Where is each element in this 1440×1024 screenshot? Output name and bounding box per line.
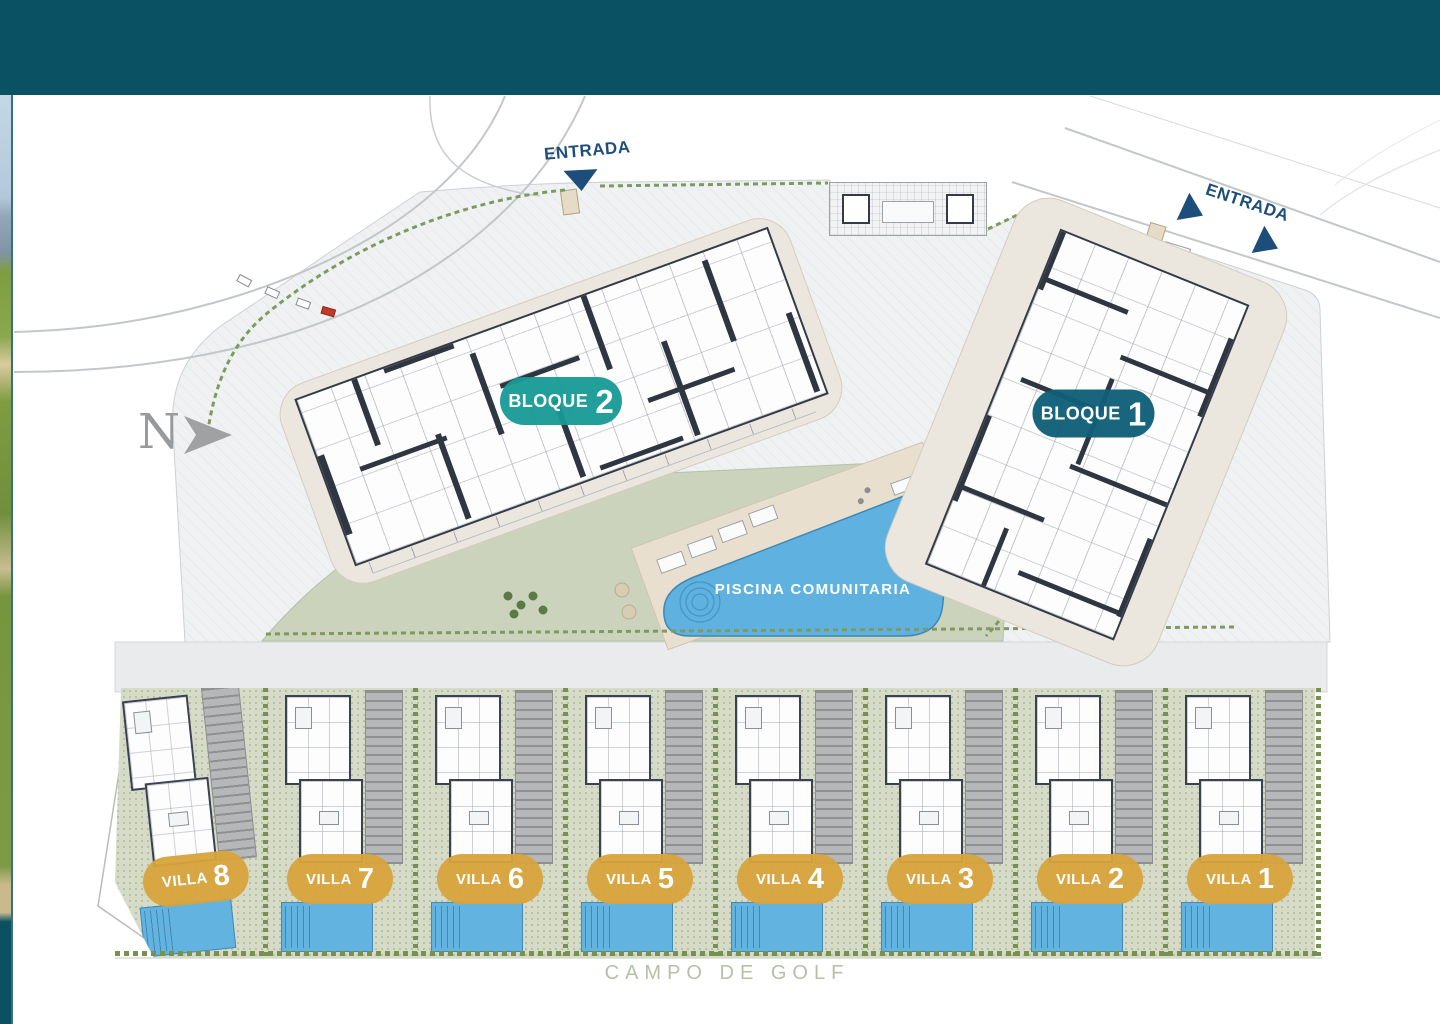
villa-pill[interactable]: VILLA 4 <box>737 854 843 904</box>
site-masterplan: BLOQUE 2 BLOQUE 1 PISCINA COMUNITARIA <box>0 0 1440 1024</box>
north-arrow-icon <box>182 414 234 456</box>
villa-plot: VILLA 6 <box>415 688 565 958</box>
villa-pill-number: 7 <box>358 865 374 894</box>
villa-pill[interactable]: VILLA 3 <box>887 854 993 904</box>
villa-living-block <box>299 779 363 863</box>
block-1-pill-label: BLOQUE <box>1041 402 1121 423</box>
villa-pool <box>581 902 673 952</box>
north-compass: N <box>138 408 234 456</box>
villa-bedroom-block <box>1035 695 1101 785</box>
villa-pill-number: 1 <box>1258 865 1274 894</box>
block-1-pill-number: 1 <box>1128 396 1146 429</box>
villa-roof <box>965 690 1003 864</box>
villa-bedroom-block <box>1185 695 1251 785</box>
villa-roof <box>1115 690 1153 864</box>
entrance-gate-structure <box>829 182 987 236</box>
villa-bedroom-block <box>885 695 951 785</box>
villa-plot: VILLA 5 <box>565 688 715 958</box>
block-2-pill[interactable]: BLOQUE 2 <box>500 377 622 425</box>
block-2-pill-label: BLOQUE <box>508 391 588 412</box>
villa-plot: VILLA 7 <box>265 688 415 958</box>
villa-pill[interactable]: VILLA 7 <box>287 854 393 904</box>
villa-plot: VILLA 3 <box>865 688 1015 958</box>
villa-pill[interactable]: VILLA 2 <box>1037 854 1143 904</box>
villa-roof <box>665 690 703 864</box>
villa-pill-label: VILLA <box>906 871 952 888</box>
villa-floorplan: VILLA 7 <box>265 688 415 958</box>
villa-pool <box>1181 902 1273 952</box>
north-letter: N <box>138 408 180 456</box>
villa-plot: VILLA 4 <box>715 688 865 958</box>
villa-pill-number: 8 <box>212 861 231 892</box>
villas-row: VILLA 8 VILLA 7 <box>115 688 1321 958</box>
villa-pill-label: VILLA <box>306 871 352 888</box>
villa-roof <box>365 690 403 864</box>
villa-pill-number: 6 <box>508 865 524 894</box>
villa-living-block <box>899 779 963 863</box>
community-pool-label: PISCINA COMUNITARIA <box>688 581 938 598</box>
villa-pool <box>431 902 523 952</box>
villa-plot: VILLA 8 <box>115 688 265 958</box>
villa-bedroom-block <box>435 695 501 785</box>
gate-kiosk-left <box>842 194 870 224</box>
villa-living-block <box>1049 779 1113 863</box>
villa-living-block <box>599 779 663 863</box>
villa-pill[interactable]: VILLA 5 <box>587 854 693 904</box>
villa-floorplan: VILLA 2 <box>1015 688 1165 958</box>
villa-pool <box>1031 902 1123 952</box>
villa-floorplan: VILLA 8 <box>101 681 278 965</box>
block-2-pill-number: 2 <box>595 385 613 418</box>
top-banner <box>0 0 1440 95</box>
villa-pool <box>140 898 237 957</box>
villa-floorplan: VILLA 1 <box>1165 688 1315 958</box>
villa-living-block <box>749 779 813 863</box>
villa-pill-label: VILLA <box>606 871 652 888</box>
block-1-pill[interactable]: BLOQUE 1 <box>1033 389 1155 437</box>
edge-divider-line <box>11 95 13 1024</box>
villa-pill[interactable]: VILLA 6 <box>437 854 543 904</box>
gate-canopy <box>882 201 934 223</box>
villa-plot: VILLA 1 <box>1165 688 1315 958</box>
villa-floorplan: VILLA 5 <box>565 688 715 958</box>
golf-course-caption: CAMPO DE GOLF <box>527 962 927 985</box>
villa-living-block <box>449 779 513 863</box>
villa-bedroom-block <box>122 695 197 791</box>
villa-bedroom-block <box>735 695 801 785</box>
villa-bedroom-block <box>285 695 351 785</box>
villa-pill-number: 5 <box>658 865 674 894</box>
villa-pill-number: 3 <box>958 865 974 894</box>
villa-floorplan: VILLA 3 <box>865 688 1015 958</box>
villa-pool <box>881 902 973 952</box>
villa-roof <box>515 690 553 864</box>
villa-roof <box>815 690 853 864</box>
villa-pool <box>731 902 823 952</box>
villa-pool <box>281 902 373 952</box>
golf-photo-edge-strip <box>0 95 11 1024</box>
villa-living-block <box>1199 779 1263 863</box>
villa-roof <box>1265 690 1303 864</box>
villa-pill-number: 2 <box>1108 865 1124 894</box>
villa-pill-label: VILLA <box>456 871 502 888</box>
villa-plot: VILLA 2 <box>1015 688 1165 958</box>
entrance-arrow-top-icon <box>563 169 598 192</box>
villa-pill-label: VILLA <box>161 869 208 891</box>
gate-kiosk-right <box>946 194 974 224</box>
villa-bedroom-block <box>585 695 651 785</box>
villa-pill-label: VILLA <box>1206 871 1252 888</box>
villa-pill[interactable]: VILLA 1 <box>1187 854 1293 904</box>
villa-floorplan: VILLA 4 <box>715 688 865 958</box>
villa-pill-label: VILLA <box>1056 871 1102 888</box>
villa-pill-number: 4 <box>808 865 824 894</box>
villa-floorplan: VILLA 6 <box>415 688 565 958</box>
villa-pill-label: VILLA <box>756 871 802 888</box>
